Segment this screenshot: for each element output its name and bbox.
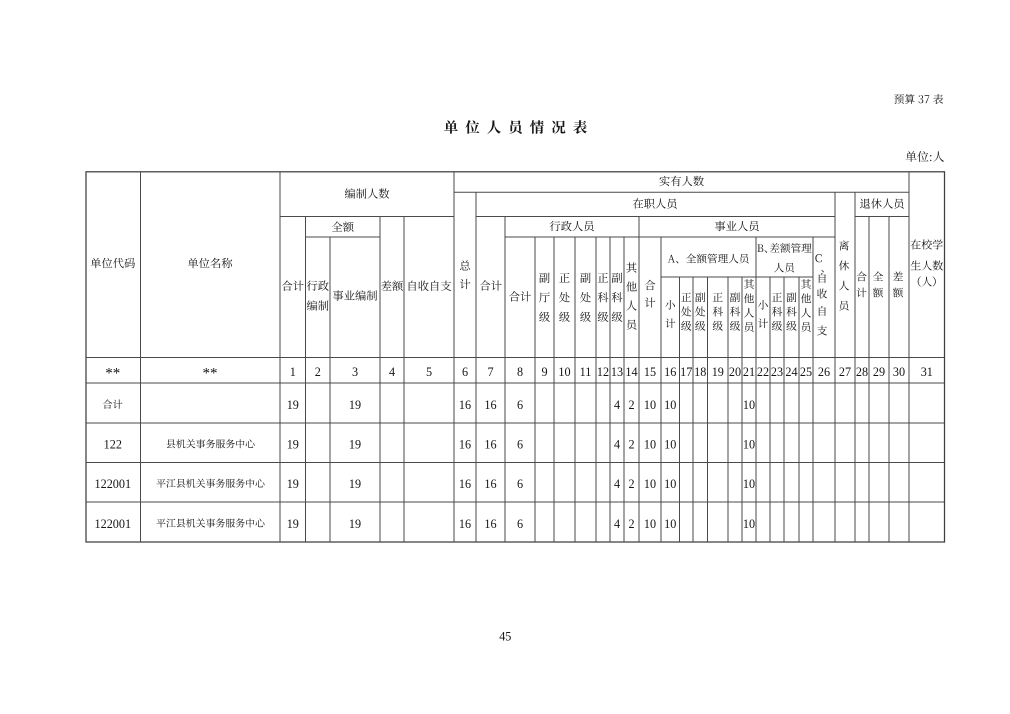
svg-text:30: 30 [893,365,905,379]
svg-text:11: 11 [580,365,592,379]
svg-text:19: 19 [287,517,299,531]
svg-text:10: 10 [558,365,570,379]
svg-text:12: 12 [597,365,609,379]
svg-text:4: 4 [614,398,620,412]
svg-text:4: 4 [614,517,620,531]
svg-text:10: 10 [644,438,656,452]
svg-text:2: 2 [628,517,634,531]
svg-text:16: 16 [484,477,496,491]
svg-text:14: 14 [625,365,637,379]
svg-text:22: 22 [757,365,769,379]
svg-text:27: 27 [839,365,851,379]
svg-text:10: 10 [664,517,676,531]
svg-text:29: 29 [873,365,885,379]
svg-text:122001: 122001 [95,477,132,491]
svg-text:6: 6 [517,517,523,531]
svg-text:16: 16 [484,398,496,412]
svg-text:6: 6 [517,477,523,491]
svg-text:31: 31 [921,365,933,379]
svg-text:10: 10 [743,438,755,452]
svg-text:8: 8 [517,365,523,379]
svg-text:122: 122 [104,438,122,452]
svg-text:10: 10 [644,477,656,491]
svg-text:16: 16 [664,365,676,379]
svg-text:10: 10 [664,477,676,491]
svg-text:45: 45 [499,629,511,643]
svg-text:16: 16 [459,477,471,491]
svg-text:10: 10 [743,477,755,491]
svg-text:10: 10 [664,398,676,412]
svg-text:4: 4 [614,477,620,491]
svg-text:21: 21 [743,365,755,379]
svg-text:6: 6 [517,438,523,452]
svg-text:2: 2 [628,438,634,452]
svg-text:16: 16 [484,517,496,531]
svg-text:19: 19 [287,438,299,452]
svg-text:25: 25 [800,365,812,379]
svg-text:6: 6 [517,398,523,412]
svg-text:10: 10 [644,517,656,531]
svg-text:10: 10 [644,398,656,412]
svg-text:26: 26 [818,365,830,379]
svg-text:1: 1 [290,365,296,379]
svg-text:2: 2 [315,365,321,379]
svg-text:13: 13 [611,365,623,379]
svg-text:19: 19 [712,365,724,379]
svg-text:**: ** [203,366,218,382]
svg-text:2: 2 [628,398,634,412]
svg-text:9: 9 [541,365,547,379]
svg-text:3: 3 [352,365,358,379]
svg-text:10: 10 [743,517,755,531]
svg-text:18: 18 [694,365,706,379]
svg-text:4: 4 [389,365,395,379]
svg-text:17: 17 [680,365,692,379]
svg-text:20: 20 [729,365,741,379]
svg-text:2: 2 [628,477,634,491]
svg-text:5: 5 [426,365,432,379]
svg-text:16: 16 [484,438,496,452]
svg-text:23: 23 [771,365,783,379]
svg-text:16: 16 [459,398,471,412]
svg-text:19: 19 [287,398,299,412]
svg-text:10: 10 [743,398,755,412]
svg-text:28: 28 [856,365,868,379]
svg-text:10: 10 [664,438,676,452]
svg-text:15: 15 [644,365,656,379]
svg-text:16: 16 [459,517,471,531]
svg-text:19: 19 [349,517,361,531]
svg-text:19: 19 [349,477,361,491]
svg-text:19: 19 [349,398,361,412]
svg-text:19: 19 [287,477,299,491]
svg-text:**: ** [105,366,120,382]
svg-text:24: 24 [785,365,797,379]
svg-text:7: 7 [487,365,493,379]
svg-text:6: 6 [462,365,468,379]
svg-text:122001: 122001 [95,517,132,531]
svg-text:16: 16 [459,438,471,452]
svg-text:19: 19 [349,438,361,452]
svg-text:4: 4 [614,438,620,452]
